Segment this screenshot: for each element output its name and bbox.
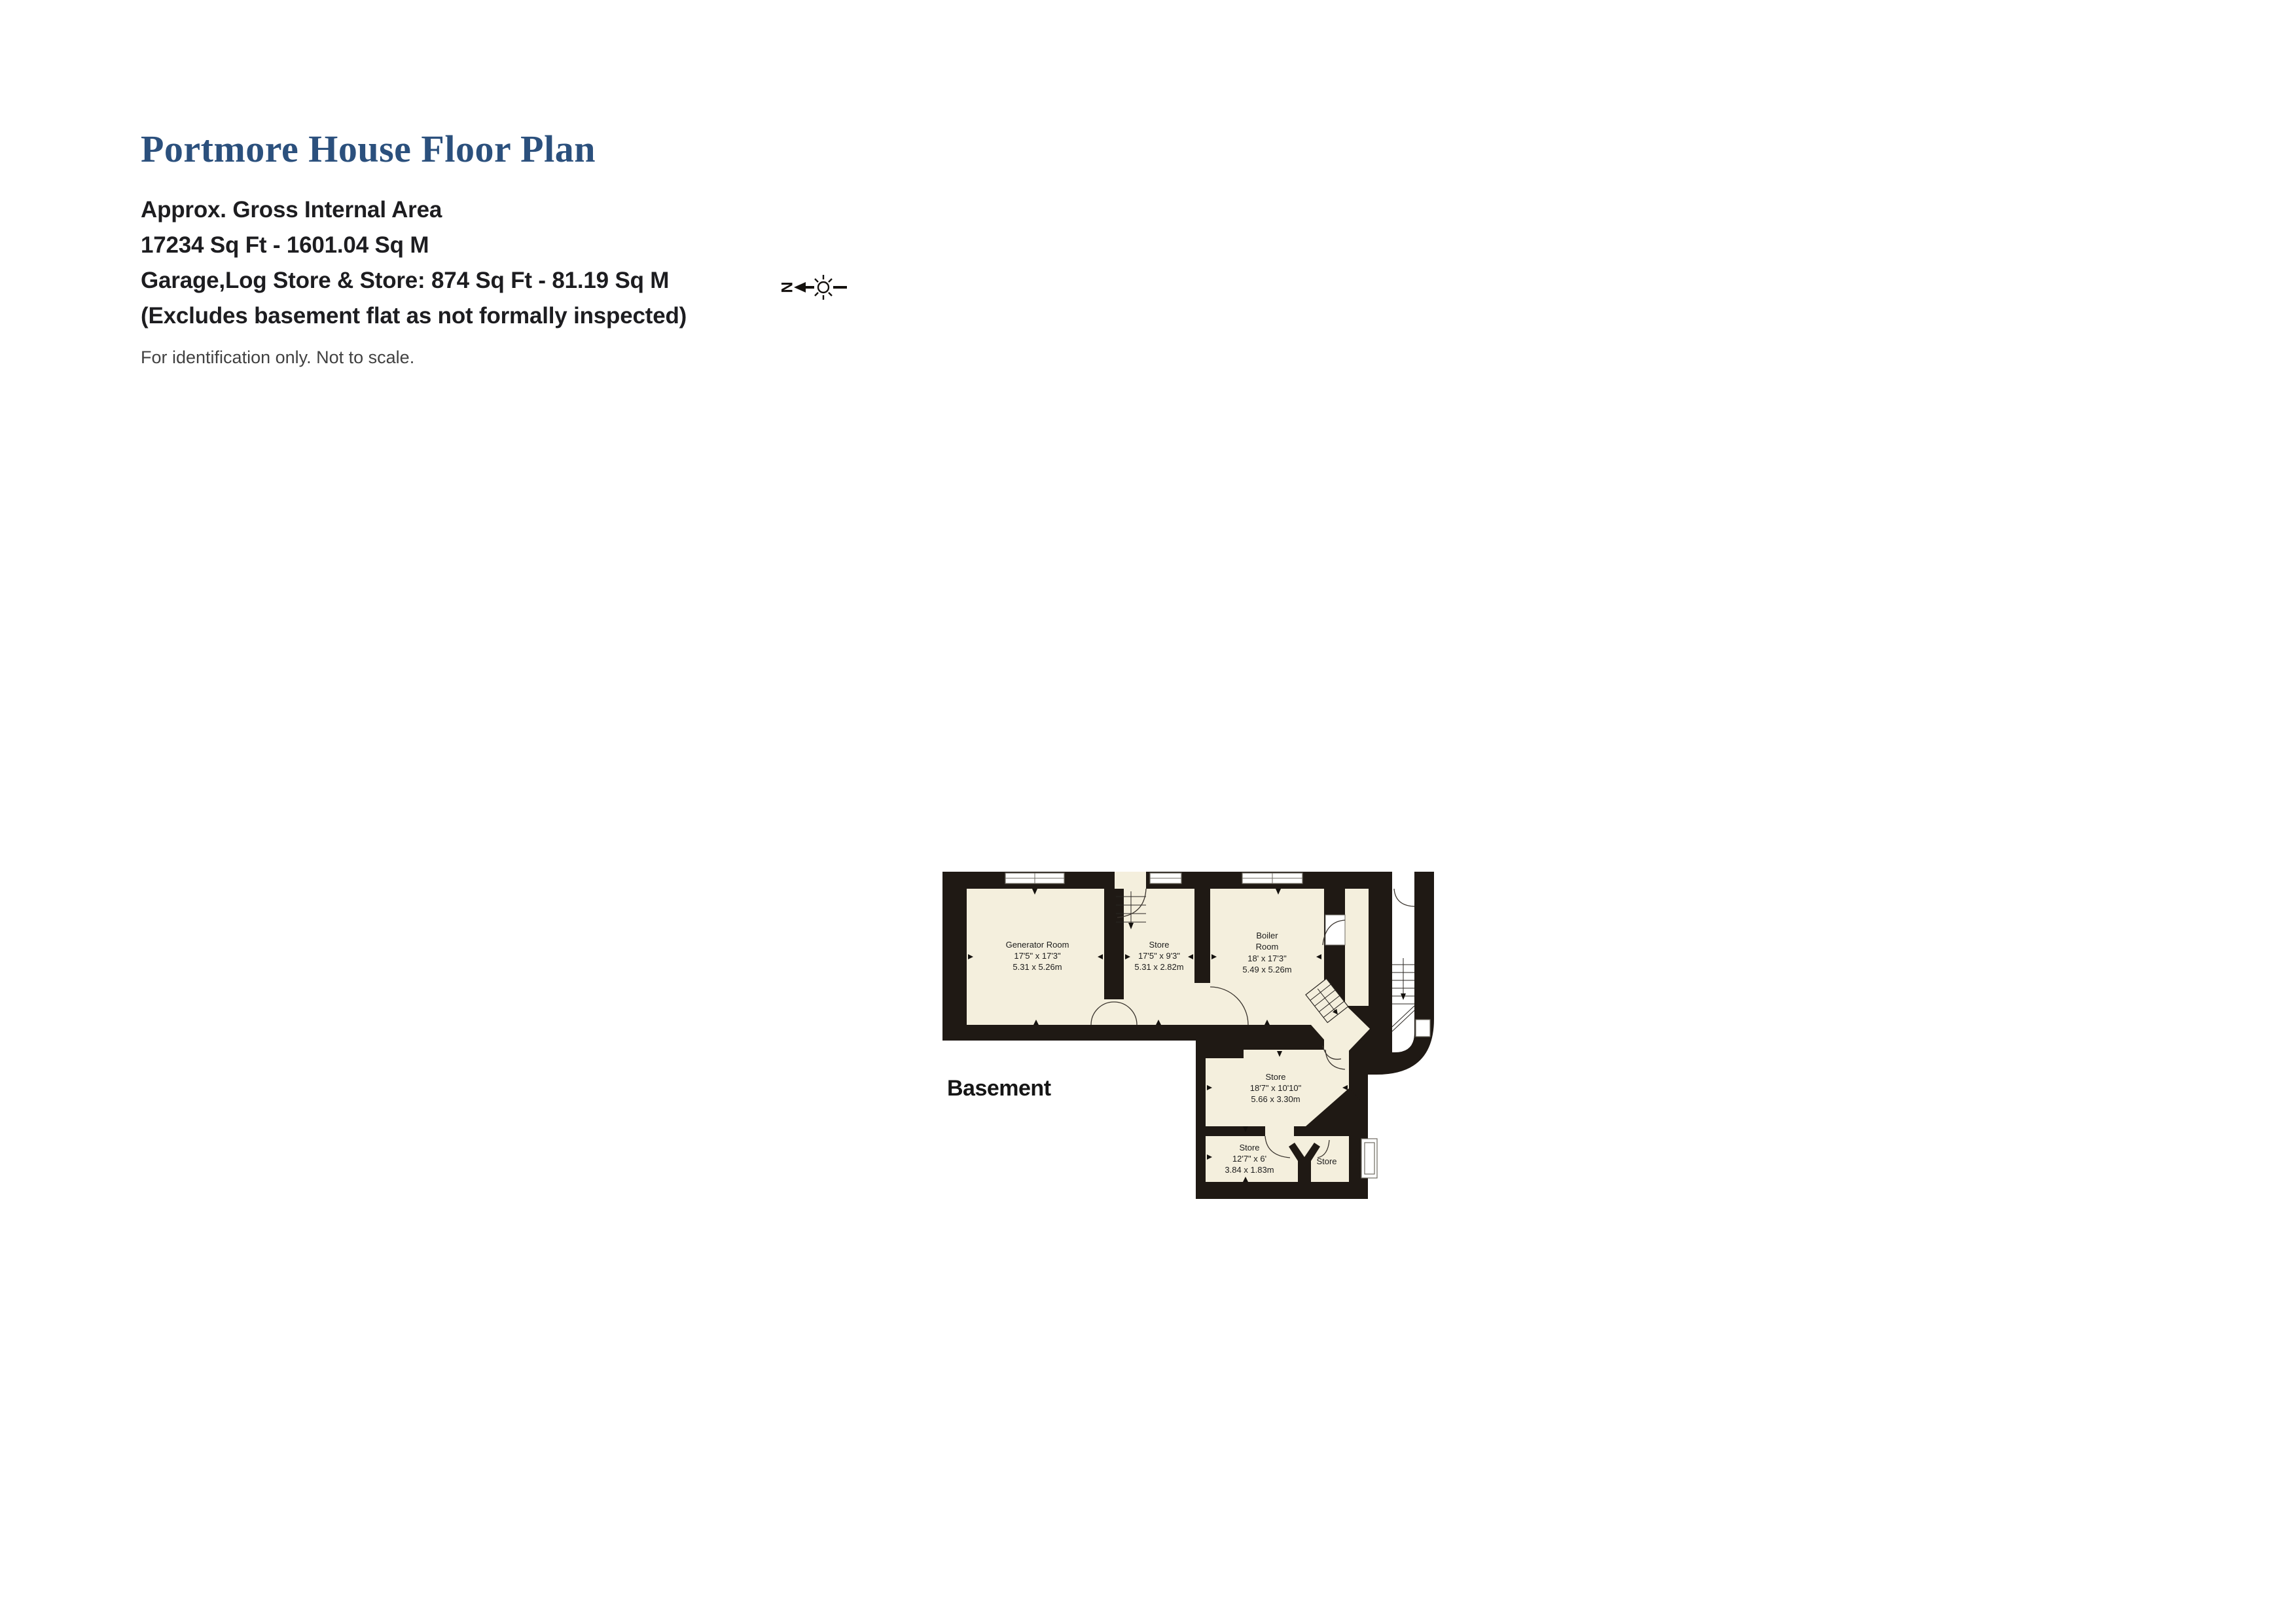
north-arrow-stem xyxy=(806,286,814,289)
area-line: Garage,Log Store & Store: 874 Sq Ft - 81… xyxy=(141,263,687,298)
window-generator-icon xyxy=(1005,873,1064,883)
page: Portmore House Floor Plan Approx. Gross … xyxy=(0,0,2296,1623)
floor-plan: Generator Room 17'5" x 17'3" 5.31 x 5.26… xyxy=(939,865,1443,1202)
area-line: 17234 Sq Ft - 1601.04 Sq M xyxy=(141,228,687,263)
disclaimer: For identification only. Not to scale. xyxy=(141,348,414,368)
sun-icon xyxy=(815,275,847,300)
room-name: Store xyxy=(1149,940,1169,950)
area-summary: Approx. Gross Internal Area 17234 Sq Ft … xyxy=(141,192,687,334)
corridor-floor xyxy=(1345,889,1369,1006)
window-boiler-icon xyxy=(1242,873,1302,883)
room-name: Boiler xyxy=(1256,931,1278,940)
room-dims-m: 5.49 x 5.26m xyxy=(1242,965,1291,974)
floor-label: Basement xyxy=(947,1076,1051,1101)
window-store-small-icon xyxy=(1361,1139,1377,1178)
room-dims-ft: 12'7" x 6' xyxy=(1232,1154,1266,1164)
room-dims-m: 5.66 x 3.30m xyxy=(1251,1094,1300,1104)
area-line: Approx. Gross Internal Area xyxy=(141,192,687,228)
room-name: Room xyxy=(1256,942,1279,952)
compass-north-label: N xyxy=(780,281,795,293)
room-label-store-small: Store xyxy=(1316,1156,1336,1166)
stairwell-window-icon xyxy=(1416,1020,1430,1037)
room-dims-m: 3.84 x 1.83m xyxy=(1225,1165,1274,1175)
window-store-top-icon xyxy=(1150,873,1181,883)
room-dims-ft: 17'5" x 17'3" xyxy=(1014,951,1061,961)
room-label-generator: Generator Room 17'5" x 17'3" 5.31 x 5.26… xyxy=(1006,940,1069,972)
room-dims-ft: 18' x 17'3" xyxy=(1247,954,1287,963)
room-name: Store xyxy=(1239,1143,1259,1152)
room-dims-m: 5.31 x 5.26m xyxy=(1013,962,1062,972)
area-line: (Excludes basement flat as not formally … xyxy=(141,298,687,334)
page-title: Portmore House Floor Plan xyxy=(141,128,596,170)
room-dims-ft: 17'5" x 9'3" xyxy=(1138,951,1180,961)
compass-icon: N xyxy=(780,270,856,305)
room-name: Generator Room xyxy=(1006,940,1069,950)
room-name: Store xyxy=(1265,1072,1285,1082)
recess-boiler xyxy=(1325,915,1345,945)
room-dims-ft: 18'7" x 10'10" xyxy=(1250,1083,1302,1093)
room-dims-m: 5.31 x 2.82m xyxy=(1134,962,1183,972)
